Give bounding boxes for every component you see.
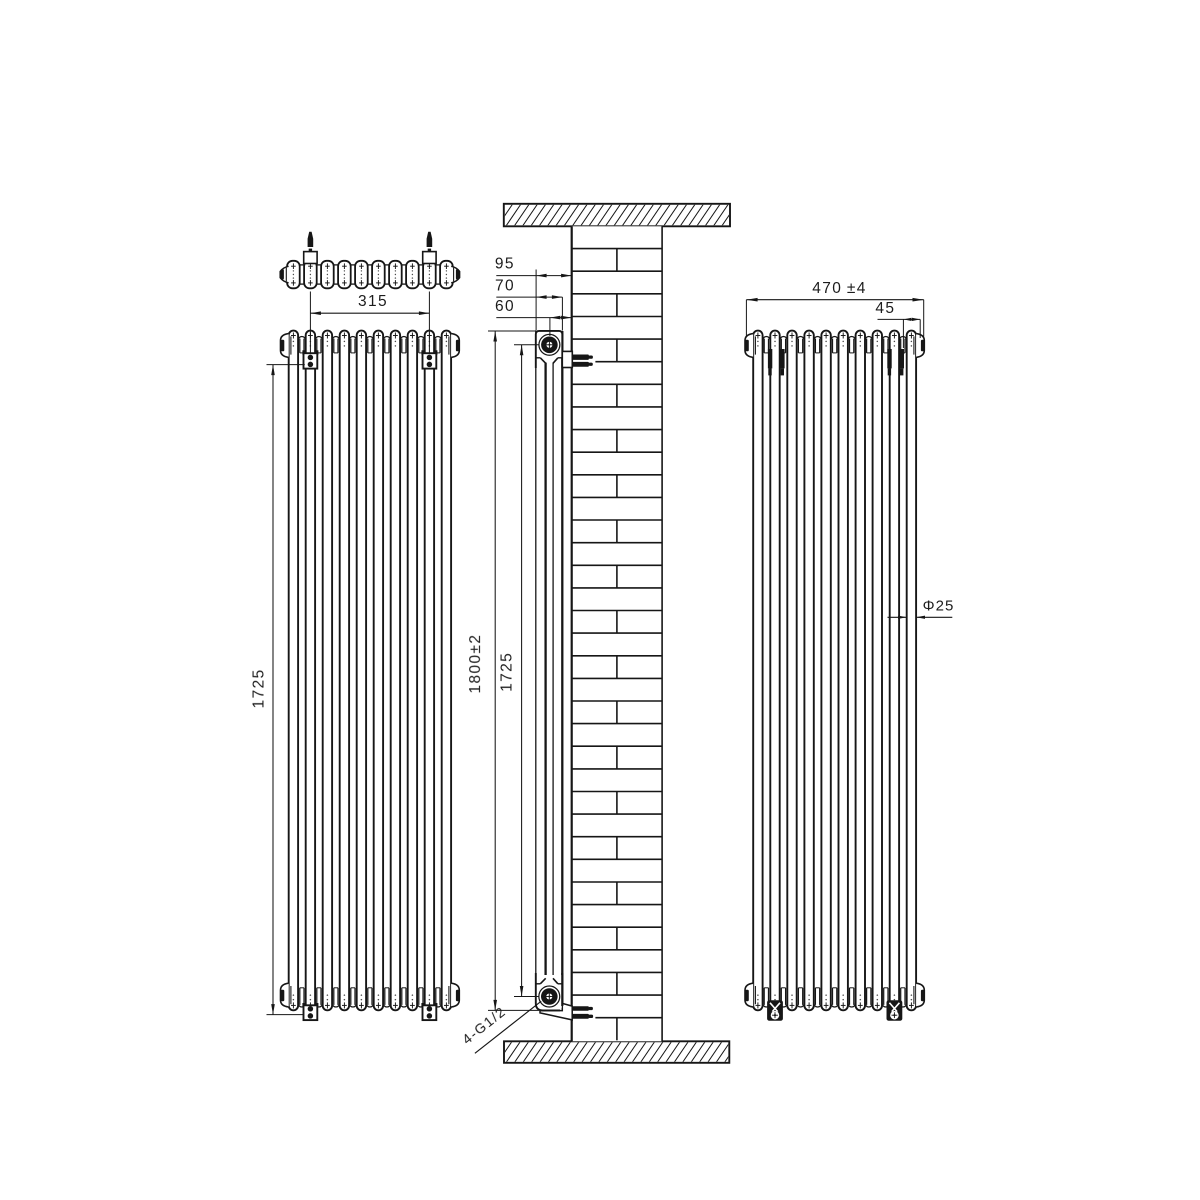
svg-text:Φ25: Φ25 — [923, 598, 955, 615]
svg-text:95: 95 — [495, 255, 515, 272]
svg-text:70: 70 — [495, 277, 515, 294]
svg-text:1725: 1725 — [250, 668, 267, 708]
svg-text:1800±2: 1800±2 — [467, 634, 484, 694]
svg-text:470 ±4: 470 ±4 — [812, 280, 867, 297]
svg-text:45: 45 — [875, 300, 895, 317]
svg-text:315: 315 — [358, 293, 388, 310]
svg-text:1725: 1725 — [498, 652, 515, 692]
svg-text:60: 60 — [495, 298, 515, 315]
